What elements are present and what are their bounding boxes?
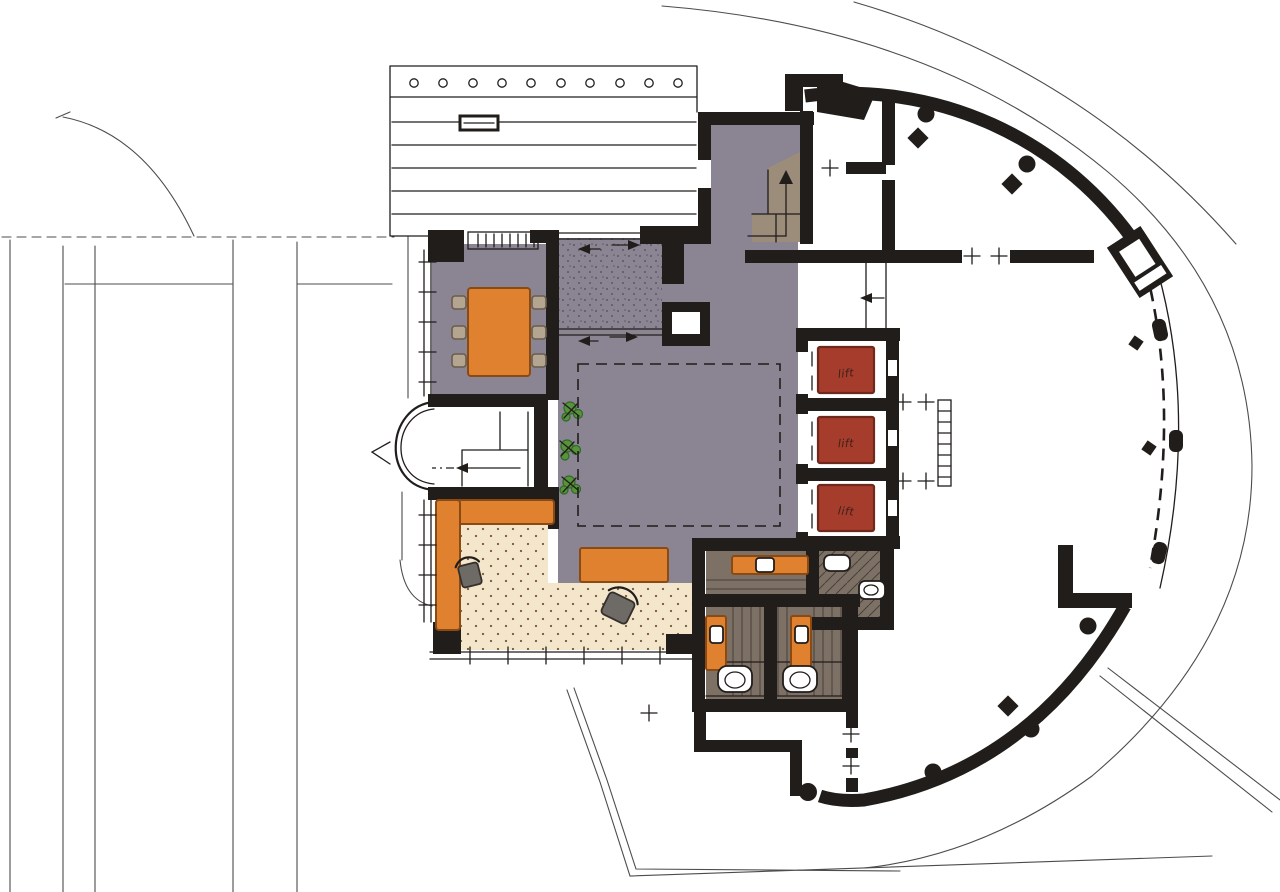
deck-plank-lines (392, 122, 696, 214)
deck-outline (390, 66, 697, 236)
dining-table (468, 288, 530, 376)
facade-post (1169, 430, 1183, 452)
lift-shaft-1: lift (812, 347, 874, 393)
roof-deck (390, 66, 697, 236)
hall-wall-niche (672, 312, 700, 334)
wall-pier-bump (925, 764, 942, 781)
entry-ramp (432, 412, 528, 486)
structural-columns (907, 106, 1183, 781)
lift-label-1: lift (837, 366, 855, 381)
lift-label-3: lift (837, 504, 854, 518)
stair-ladder-symbol (938, 400, 951, 486)
wc-lobby-sink (756, 558, 774, 572)
lift-wall-notch-3 (888, 500, 897, 516)
southeast-path-lines (1100, 668, 1280, 812)
washroom-toilet (859, 581, 885, 599)
wall-pier-bump (1080, 618, 1097, 635)
parking-lane-lines (10, 240, 392, 892)
gate-swing-arc (56, 112, 194, 236)
hall-desk (580, 548, 668, 582)
curved-wall-dashed-east (1146, 270, 1164, 568)
column-diamond (1001, 173, 1022, 194)
deck-post-row (410, 79, 682, 87)
entry-porch-doors (372, 402, 434, 490)
column-square (1141, 440, 1156, 455)
wall-pier-bump (1023, 721, 1040, 738)
lift-shaft-2: lift (812, 417, 874, 463)
lift-wall-notch-1 (888, 360, 897, 376)
lift-wall-notch-2 (888, 430, 897, 446)
wc-stall-2-toilet (783, 666, 817, 692)
curved-wall-south (820, 606, 1125, 801)
lift-bank: lift lift lift (812, 347, 951, 531)
east-doorway-vestibule (1107, 226, 1173, 298)
south-site-boundary (567, 688, 1212, 876)
outer-path-arc-2 (854, 2, 1236, 244)
deck-bench (460, 116, 498, 130)
entrance-mat-texture (558, 238, 662, 330)
lift-label-2: lift (838, 437, 855, 451)
wc-stall-1-toilet (718, 666, 752, 692)
wc-lobby-planks (706, 576, 806, 594)
facade-post (1151, 318, 1169, 342)
floor-plan-page: lift lift lift (0, 0, 1280, 892)
lift-shaft-3: lift (812, 485, 874, 531)
washroom-sink (824, 555, 850, 571)
wall-pier-bump (1019, 156, 1036, 173)
wall-pier-bump (918, 106, 935, 123)
curved-glazing-line-east (1154, 258, 1179, 588)
wc-stall-2-sink (795, 626, 808, 643)
column-square (1128, 335, 1143, 350)
column-diamond (997, 695, 1018, 716)
column-diamond (907, 127, 928, 148)
wc-stall-1-sink (710, 626, 723, 643)
floor-plan-drawing: lift lift lift (0, 0, 1280, 892)
ramp-to-hall (860, 258, 886, 332)
